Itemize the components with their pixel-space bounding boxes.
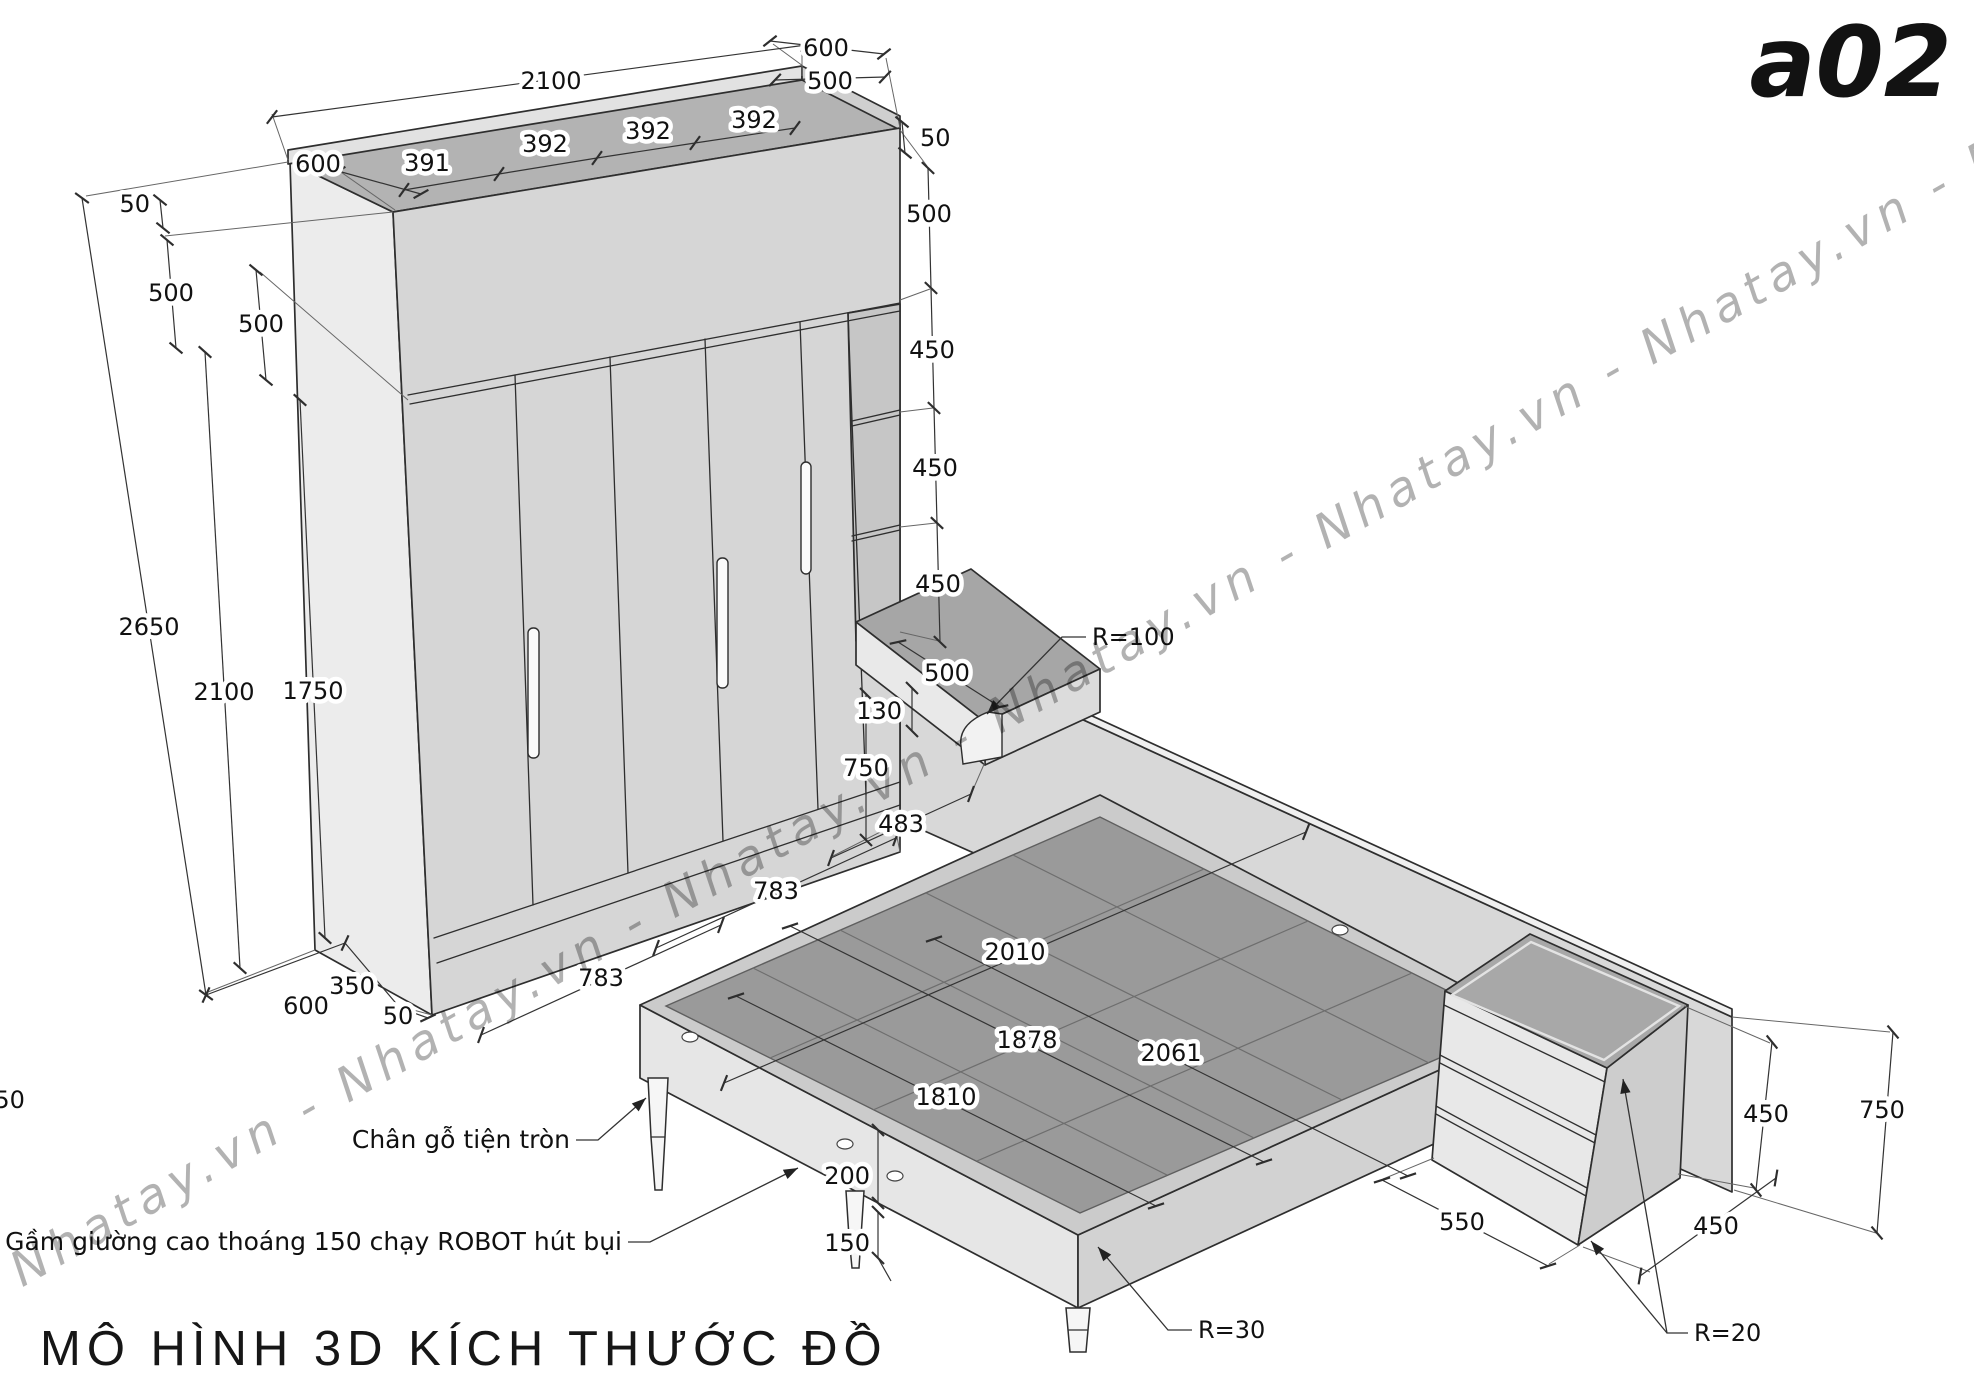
dim-shelf-130: 130 xyxy=(856,697,902,725)
dim-nightstand-450-bottom: 450 xyxy=(1693,1212,1739,1240)
note-wood-leg: Chân gỗ tiện tròn xyxy=(352,1125,570,1154)
dim-783-upper: 783 xyxy=(753,877,799,905)
dim-left-500-inner: 500 xyxy=(238,310,284,338)
page-title: MÔ HÌNH 3D KÍCH THƯỚC ĐỒ xyxy=(40,1321,888,1376)
open-shelf-niche xyxy=(848,304,900,641)
dim-shelf-500: 500 xyxy=(924,659,970,687)
dim-right-450-1: 450 xyxy=(909,336,955,364)
dim-nightstand-550: 550 xyxy=(1439,1208,1485,1236)
dim-left-1750: 1750 xyxy=(282,677,343,705)
dim-right-500: 500 xyxy=(906,200,952,228)
dim-base-50: 50 xyxy=(383,1002,414,1030)
dim-right-450-2: 450 xyxy=(912,454,958,482)
dim-shelf-750: 750 xyxy=(843,754,889,782)
dim-bed-2061: 2061 xyxy=(1140,1039,1201,1067)
dim-bed-150: 150 xyxy=(824,1229,870,1257)
dim-top-392-1: 392 xyxy=(522,130,568,158)
dim-top-500-right: 500 xyxy=(807,67,853,95)
bed-leg xyxy=(1066,1308,1090,1352)
diagram-svg: 2100 600 391 392 392 392 600 500 50 500 … xyxy=(0,0,1974,1400)
dim-nightstand-450-vert: 450 xyxy=(1743,1100,1789,1128)
screw-hole xyxy=(682,1032,698,1042)
screw-hole xyxy=(887,1171,903,1181)
dim-left-edge-750: 750 xyxy=(0,1086,25,1114)
furniture-3d-dimension-diagram: 2100 600 391 392 392 392 600 500 50 500 … xyxy=(0,0,1974,1400)
annotations: Chân gỗ tiện tròn Gầm giường cao thoáng … xyxy=(5,1125,622,1256)
bed-leg xyxy=(648,1078,668,1190)
dim-top-2100: 2100 xyxy=(520,67,581,95)
dim-top-392-2: 392 xyxy=(625,117,671,145)
screw-hole xyxy=(837,1139,853,1149)
dim-right-450-3: 450 xyxy=(915,570,961,598)
label-r100: R=100 xyxy=(1092,623,1175,651)
screw-hole xyxy=(1332,925,1348,935)
dim-right-750: 750 xyxy=(1859,1096,1905,1124)
dim-left-500-outer: 500 xyxy=(148,279,194,307)
dim-left-2100: 2100 xyxy=(193,678,254,706)
dim-top-600-right: 600 xyxy=(803,34,849,62)
wardrobe xyxy=(288,66,900,1015)
label-r30: R=30 xyxy=(1198,1316,1265,1344)
dim-483: 483 xyxy=(878,810,924,838)
door-handle xyxy=(528,628,539,758)
dim-top-600-left: 600 xyxy=(295,150,341,178)
dim-base-350: 350 xyxy=(329,972,375,1000)
dim-bed-1878: 1878 xyxy=(996,1026,1057,1054)
drawing-code: a02 xyxy=(1749,6,1952,120)
dim-left-2650: 2650 xyxy=(118,613,179,641)
dim-bed-1810: 1810 xyxy=(915,1083,976,1111)
label-r20: R=20 xyxy=(1694,1319,1761,1347)
note-robot-clearance: Gầm giường cao thoáng 150 chạy ROBOT hút… xyxy=(5,1227,622,1256)
dim-base-600: 600 xyxy=(283,992,329,1020)
dim-left-50: 50 xyxy=(119,190,150,218)
door-handle xyxy=(717,558,728,688)
dim-bed-2010: 2010 xyxy=(984,938,1045,966)
dim-783-lower: 783 xyxy=(578,964,624,992)
dim-top-392-3: 392 xyxy=(731,106,777,134)
dim-bed-200: 200 xyxy=(824,1162,870,1190)
door-handle xyxy=(801,462,811,574)
dim-50-right: 50 xyxy=(920,124,951,152)
dim-top-391: 391 xyxy=(404,149,450,177)
